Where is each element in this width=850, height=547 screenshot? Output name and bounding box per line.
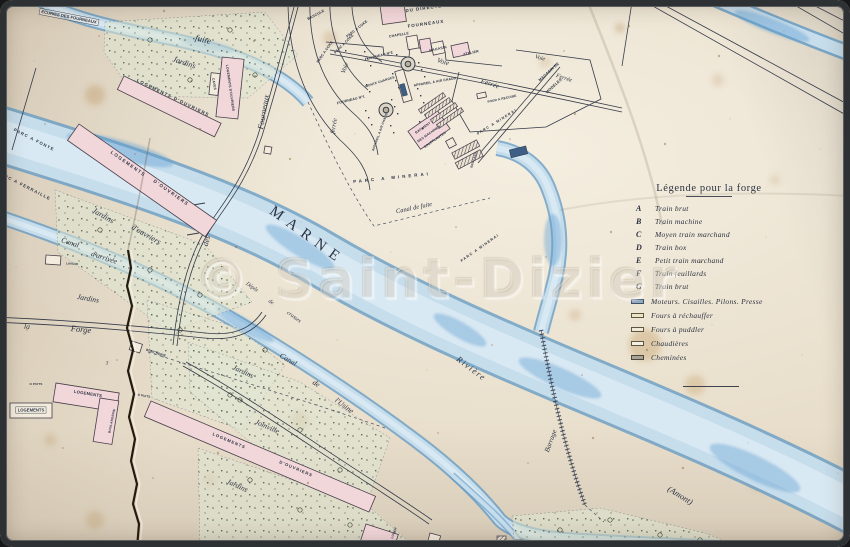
legend-swatch-item-1: Fours à réchauffer (628, 309, 793, 323)
legend-swatch (631, 327, 644, 332)
legend-label: Train box (655, 243, 687, 252)
legend-key: G (636, 282, 647, 291)
legend-label: Train feuillards (655, 269, 706, 278)
legend-end-rule (683, 386, 739, 387)
legend-label: Train brut (655, 282, 689, 291)
legend-item-E: EPetit train marchand (628, 256, 793, 269)
legend-swatch (631, 299, 644, 304)
legend-swatch-item-3: Chaudières (628, 336, 793, 350)
legend-swatch (631, 313, 644, 318)
legend-swatch-items: Moteurs. Cisailles. Pilons. PresseFours … (628, 295, 793, 364)
logements-box (10, 403, 52, 418)
legend: Légende pour la forge ATrain brutBTrain … (628, 183, 793, 364)
legend-label: Fours à réchauffer (651, 311, 713, 320)
map-paper: ECURIES DES FOURNEAUXfuiteJardinsLOGEMEN… (0, 0, 850, 547)
legend-item-A: ATrain brut (628, 204, 793, 217)
lavoir-building (45, 255, 61, 265)
legend-key: F (636, 269, 647, 278)
legend-label: Cheminées (651, 353, 687, 362)
legend-label: Petit train marchand (655, 256, 724, 265)
caves-building (209, 73, 220, 96)
legend-label: Moyen train marchand (655, 230, 730, 239)
legend-item-C: CMoyen train marchand (628, 230, 793, 243)
magasin-modeles-enclosure (452, 50, 601, 132)
legend-item-G: GTrain brut (628, 282, 793, 295)
legend-title: Légende pour la forge (642, 183, 776, 194)
legend-swatch-item-0: Moteurs. Cisailles. Pilons. Presse (628, 295, 793, 309)
legend-label: Train machine (655, 217, 702, 226)
maison-directeur (380, 0, 407, 25)
legend-item-F: FTrain feuillards (628, 269, 793, 282)
legend-key: A (636, 204, 647, 213)
atelier-building (451, 42, 470, 57)
legend-swatch-item-2: Fours à puddler (628, 323, 793, 337)
legend-swatch (631, 341, 644, 346)
map-photo: ECURIES DES FOURNEAUXfuiteJardinsLOGEMEN… (0, 0, 850, 547)
legend-key: E (636, 256, 647, 265)
legend-key: B (636, 217, 647, 226)
legend-label: Fours à puddler (651, 325, 704, 334)
legend-item-B: BTrain machine (628, 217, 793, 230)
legend-title-underline (686, 196, 732, 197)
legend-letter-items: ATrain brutBTrain machineCMoyen train ma… (628, 204, 793, 295)
legend-item-D: DTrain box (628, 243, 793, 256)
legend-swatch (631, 355, 644, 360)
chapelle-building (406, 35, 419, 50)
legend-label: Moteurs. Cisailles. Pilons. Presse (651, 297, 763, 306)
legend-label: Train brut (655, 204, 689, 213)
legend-label: Chaudières (651, 339, 688, 348)
legend-key: C (636, 230, 647, 239)
legend-key: D (636, 243, 647, 252)
legend-swatch-item-4: Cheminées (628, 350, 793, 364)
